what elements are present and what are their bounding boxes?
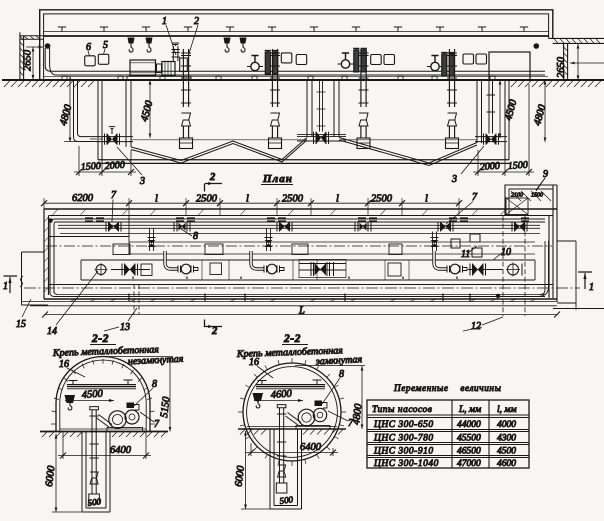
- svg-text:9: 9: [543, 169, 548, 180]
- svg-text:2500: 2500: [196, 194, 218, 205]
- svg-text:4600: 4600: [497, 459, 516, 469]
- svg-text:2: 2: [209, 172, 216, 183]
- svg-text:ЦНС 300-650: ЦНС 300-650: [373, 420, 434, 430]
- svg-text:4300: 4300: [497, 434, 516, 444]
- svg-text:4500: 4500: [81, 389, 103, 401]
- svg-text:6000: 6000: [234, 464, 248, 487]
- svg-text:15: 15: [16, 319, 26, 330]
- svg-text:2000: 2000: [104, 160, 125, 172]
- svg-text:7: 7: [111, 190, 117, 201]
- svg-text:l: l: [336, 194, 339, 205]
- svg-text:6000: 6000: [44, 464, 58, 487]
- svg-text:5150: 5150: [159, 395, 173, 418]
- svg-text:2650: 2650: [556, 56, 567, 78]
- svg-text:1500: 1500: [531, 193, 543, 199]
- svg-text:14: 14: [47, 326, 57, 337]
- svg-text:4500: 4500: [497, 447, 516, 457]
- svg-text:5: 5: [103, 40, 108, 51]
- svg-text:44000: 44000: [457, 420, 481, 430]
- svg-text:45500: 45500: [457, 434, 481, 444]
- svg-text:2650: 2650: [23, 49, 34, 71]
- svg-text:ЦНС 300-1040: ЦНС 300-1040: [373, 459, 439, 469]
- svg-text:4800: 4800: [351, 402, 365, 425]
- svg-text:2-2: 2-2: [283, 333, 301, 345]
- svg-text:l, мм: l, мм: [497, 405, 517, 415]
- svg-text:12: 12: [471, 321, 481, 332]
- svg-text:500: 500: [87, 496, 102, 508]
- svg-text:500: 500: [279, 494, 294, 506]
- svg-text:2-2: 2-2: [91, 333, 109, 345]
- svg-text:План: План: [262, 173, 293, 185]
- svg-text:4800: 4800: [58, 103, 74, 127]
- svg-text:1: 1: [3, 281, 8, 292]
- svg-text:l: l: [246, 194, 249, 205]
- svg-text:2500: 2500: [371, 194, 393, 205]
- svg-text:11: 11: [461, 249, 470, 260]
- svg-text:2000: 2000: [479, 161, 500, 173]
- svg-text:4500: 4500: [139, 99, 155, 123]
- svg-text:l: l: [155, 194, 158, 205]
- svg-text:47000: 47000: [457, 459, 481, 469]
- svg-text:ЦНС 300-780: ЦНС 300-780: [373, 434, 434, 444]
- svg-text:l: l: [425, 194, 428, 205]
- svg-text:ЦНС 300-910: ЦНС 300-910: [373, 447, 434, 457]
- svg-text:1: 1: [589, 282, 594, 293]
- svg-text:7: 7: [154, 419, 160, 430]
- svg-text:1500: 1500: [80, 161, 101, 173]
- svg-text:4000: 4000: [497, 420, 516, 430]
- svg-text:3: 3: [451, 174, 457, 185]
- svg-text:2500: 2500: [282, 194, 304, 205]
- svg-text:L: L: [298, 306, 305, 317]
- svg-text:6400: 6400: [300, 442, 322, 453]
- svg-text:4500: 4500: [503, 98, 519, 122]
- svg-text:6400: 6400: [110, 445, 132, 456]
- svg-text:незамкнутая: незамкнутая: [128, 354, 184, 368]
- svg-text:6200: 6200: [72, 193, 94, 204]
- svg-text:2100: 2100: [511, 193, 523, 199]
- svg-text:3: 3: [139, 176, 145, 187]
- svg-text:13: 13: [120, 322, 130, 333]
- svg-text:7: 7: [472, 192, 478, 203]
- svg-text:8: 8: [193, 231, 198, 242]
- svg-text:2: 2: [211, 326, 218, 337]
- svg-text:46500: 46500: [457, 447, 481, 457]
- svg-text:Типы насосов: Типы насосов: [372, 405, 432, 415]
- svg-text:4800: 4800: [532, 103, 548, 127]
- svg-text:1500: 1500: [507, 160, 528, 172]
- svg-text:L, мм: L, мм: [458, 405, 481, 415]
- svg-text:4600: 4600: [270, 389, 292, 401]
- svg-text:Переменные величины: Переменные величины: [393, 383, 501, 393]
